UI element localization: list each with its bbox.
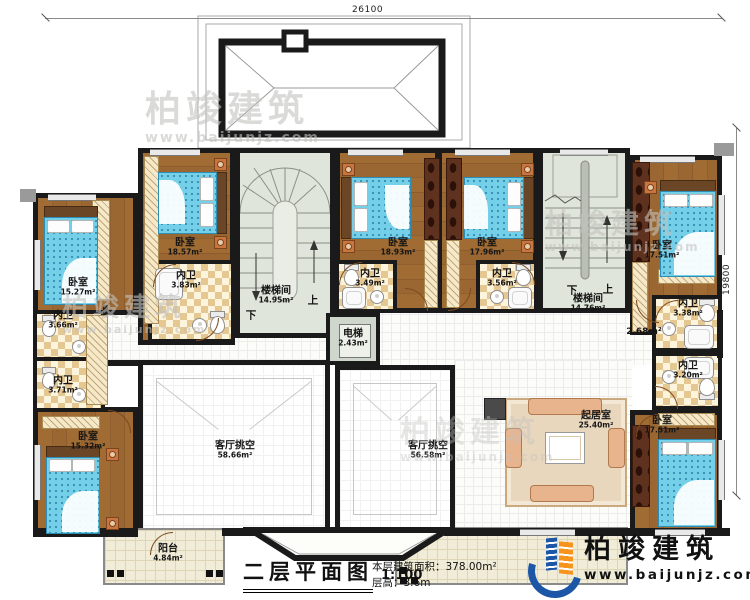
room-area: 56.58m² — [408, 451, 448, 459]
bed-pillow — [689, 194, 713, 207]
armchair — [505, 428, 522, 468]
wall — [222, 528, 260, 536]
bed — [462, 176, 532, 238]
shower — [684, 325, 714, 349]
bed — [158, 170, 226, 234]
roof-outline — [196, 14, 472, 150]
sofa — [530, 485, 594, 502]
bed-pillow — [688, 442, 713, 455]
sink — [662, 322, 676, 336]
bed-pillow — [47, 220, 70, 233]
room-label-bedroom-15-27: 卧室15.27m² — [61, 277, 96, 296]
bed-pillow — [71, 220, 94, 233]
bed-pillow — [354, 208, 368, 232]
room-area: 17.96m² — [470, 248, 505, 256]
brand-logo-icon — [526, 536, 584, 588]
wall — [103, 360, 143, 366]
room-area: 2.43m² — [338, 339, 368, 347]
room-area: 58.66m² — [215, 451, 255, 459]
desk-cabinet — [446, 158, 462, 240]
bed-pillow — [664, 194, 688, 207]
room-area: 25.40m² — [579, 421, 614, 429]
room-area: 3.38m² — [673, 309, 703, 317]
logo-building-orange — [559, 541, 573, 574]
armchair — [608, 428, 625, 468]
stair-up-label: 上 — [603, 282, 614, 297]
window — [348, 149, 403, 156]
wardrobe — [424, 240, 438, 308]
room-label-balcony: 阳台4.84m² — [153, 543, 183, 562]
room-label-elevator: 电梯2.43m² — [338, 328, 368, 347]
nightstand — [644, 181, 657, 194]
window — [48, 194, 96, 201]
window — [718, 195, 725, 255]
room-label-bedroom-18-57: 卧室18.57m² — [168, 237, 203, 256]
window — [455, 149, 510, 156]
room-label-bedroom-17-51-bottom: 卧室17.51m² — [645, 415, 680, 434]
bed — [658, 180, 718, 280]
floor-plan-canvas: 26100 19800 — [0, 0, 750, 600]
room-label-hall-2-68: 2.68m² — [626, 328, 662, 338]
brand-text-group: 柏竣建筑 www.baijunjz.com — [584, 536, 750, 583]
room-area: 18.57m² — [168, 248, 203, 256]
window — [150, 149, 200, 156]
stair-down-label: 下 — [246, 308, 257, 323]
bed — [656, 428, 718, 528]
balcony-post — [107, 570, 114, 577]
brand-name: 柏竣建筑 — [584, 536, 750, 563]
dimension-top-value: 26100 — [352, 5, 383, 15]
desk-cabinet — [632, 425, 650, 507]
pilaster — [714, 143, 734, 156]
balcony-post — [206, 570, 213, 577]
room-label-living: 起居室25.40m² — [579, 410, 614, 429]
sink — [490, 290, 504, 304]
bed-pillow — [354, 182, 368, 206]
nightstand — [342, 240, 355, 253]
bed-pillow — [49, 459, 72, 472]
shower — [342, 287, 366, 309]
room-area: 3.71m² — [48, 386, 78, 394]
stair-right-straight — [543, 153, 627, 305]
nightstand — [342, 163, 355, 176]
room-label-bedroom-15-32: 卧室15.32m² — [71, 431, 106, 450]
room-area: 3.66m² — [48, 321, 78, 329]
nightstand — [521, 163, 534, 176]
bed-pillow — [200, 203, 214, 227]
void-opening-line — [398, 385, 437, 421]
drawing-title: 二层平面图 — [243, 556, 373, 590]
stair-up-label: 上 — [308, 293, 319, 308]
window — [34, 445, 41, 500]
sink — [72, 340, 86, 354]
shower — [508, 287, 532, 309]
room-label-stair-left: 楼梯间14.95m² — [259, 285, 294, 304]
stair-down-label: 下 — [567, 283, 578, 298]
toilet — [699, 378, 715, 396]
bed-pillow — [200, 177, 214, 201]
nightstand — [214, 158, 227, 171]
room-label-void-right: 客厅挑空56.58m² — [408, 440, 448, 459]
wardrobe — [632, 262, 648, 332]
balcony-post — [216, 570, 223, 577]
room-label-void-left: 客厅挑空58.66m² — [215, 440, 255, 459]
room-area: 14.76m² — [571, 304, 606, 312]
room-area: 3.56m² — [487, 279, 517, 287]
room-label-bath-3-38: 内卫3.38m² — [673, 298, 703, 317]
room-area: 15.32m² — [71, 442, 106, 450]
room-label-bath-3-49: 内卫3.49m² — [355, 268, 385, 287]
bed-pillow — [72, 459, 95, 472]
room-label-bath-3-20: 内卫3.20m² — [673, 360, 703, 379]
floor-height-line: 层高：3.6m — [372, 576, 497, 592]
room-label-bedroom-18-93: 卧室18.93m² — [381, 237, 416, 256]
bed-pillow — [507, 182, 521, 206]
sink — [370, 290, 384, 304]
room-area: 3.20m² — [673, 371, 703, 379]
coffee-table — [545, 432, 585, 464]
nightstand — [106, 517, 119, 530]
void-opening-line — [157, 381, 219, 430]
room-label-bath-3-71: 内卫3.71m² — [48, 375, 78, 394]
nightstand — [106, 448, 119, 461]
void-opening-line — [249, 381, 311, 430]
desk-cabinet — [424, 158, 440, 240]
wardrobe — [86, 315, 108, 405]
bed — [341, 176, 411, 238]
dimension-line-right — [736, 128, 737, 496]
room-label-bath-3-56: 内卫3.56m² — [487, 268, 517, 287]
balcony-post — [117, 570, 124, 577]
room-area: 18.93m² — [381, 248, 416, 256]
floor-area-line: 本层建筑面积：378.00m² — [372, 560, 497, 576]
bed-blanket — [62, 491, 98, 532]
room-area: 17.51m² — [645, 251, 680, 259]
room-area: 2.68m² — [626, 328, 662, 338]
room-label-bath-3-83: 内卫3.83m² — [171, 270, 201, 289]
room-area: 15.27m² — [61, 288, 96, 296]
bed — [44, 446, 102, 536]
tv-cabinet — [484, 398, 506, 420]
room-area: 3.49m² — [355, 279, 385, 287]
window — [34, 240, 41, 290]
room-area: 4.84m² — [153, 554, 183, 562]
wall — [717, 310, 723, 358]
dimension-line-top — [45, 18, 722, 19]
room-area: 17.51m² — [645, 426, 680, 434]
room-label-bath-3-66: 内卫3.66m² — [48, 310, 78, 329]
room-label-bedroom-17-51-top: 卧室17.51m² — [645, 240, 680, 259]
logo-building-blue — [546, 538, 557, 571]
void-opening-line — [353, 385, 392, 421]
nightstand — [521, 240, 534, 253]
dimension-right-value: 19800 — [722, 264, 732, 295]
brand-url: www.baijunjz.com — [584, 567, 750, 583]
bed-pillow — [507, 208, 521, 232]
pilaster — [20, 189, 36, 202]
room-label-bedroom-17-96: 卧室17.96m² — [470, 237, 505, 256]
brand-logo: 柏竣建筑 www.baijunjz.com — [526, 536, 750, 588]
window — [520, 529, 575, 536]
room-area: 3.83m² — [171, 281, 201, 289]
nightstand — [214, 236, 227, 249]
drawing-info: 本层建筑面积：378.00m² 层高：3.6m — [372, 560, 497, 592]
room-area: 14.95m² — [259, 296, 294, 304]
wardrobe — [42, 416, 100, 429]
bed-pillow — [662, 442, 687, 455]
window — [718, 440, 725, 500]
